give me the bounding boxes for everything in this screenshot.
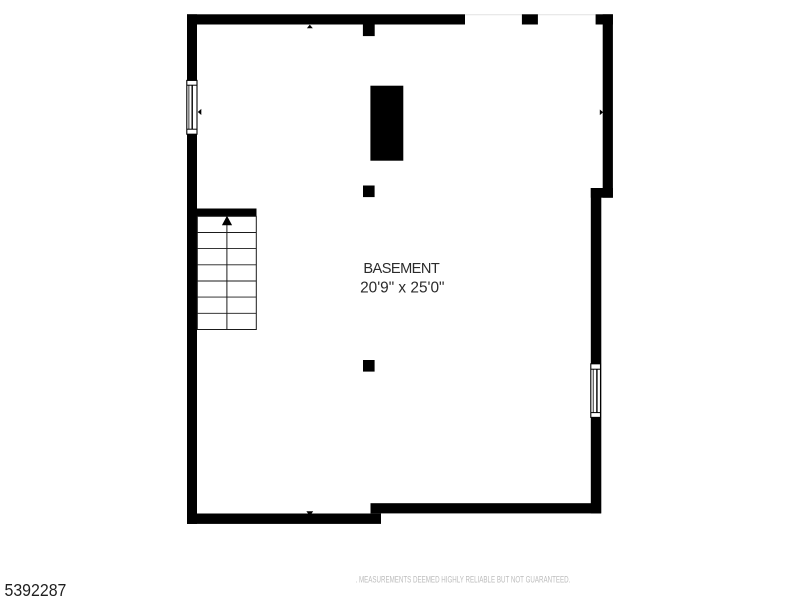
svg-text:5392287: 5392287 — [5, 580, 67, 600]
svg-text:BASEMENT: BASEMENT — [363, 261, 440, 277]
svg-text:20'9" x 25'0": 20'9" x 25'0" — [360, 280, 444, 297]
svg-text:. MEASUREMENTS DEEMED HIGHLY R: . MEASUREMENTS DEEMED HIGHLY RELIABLE BU… — [356, 574, 571, 584]
